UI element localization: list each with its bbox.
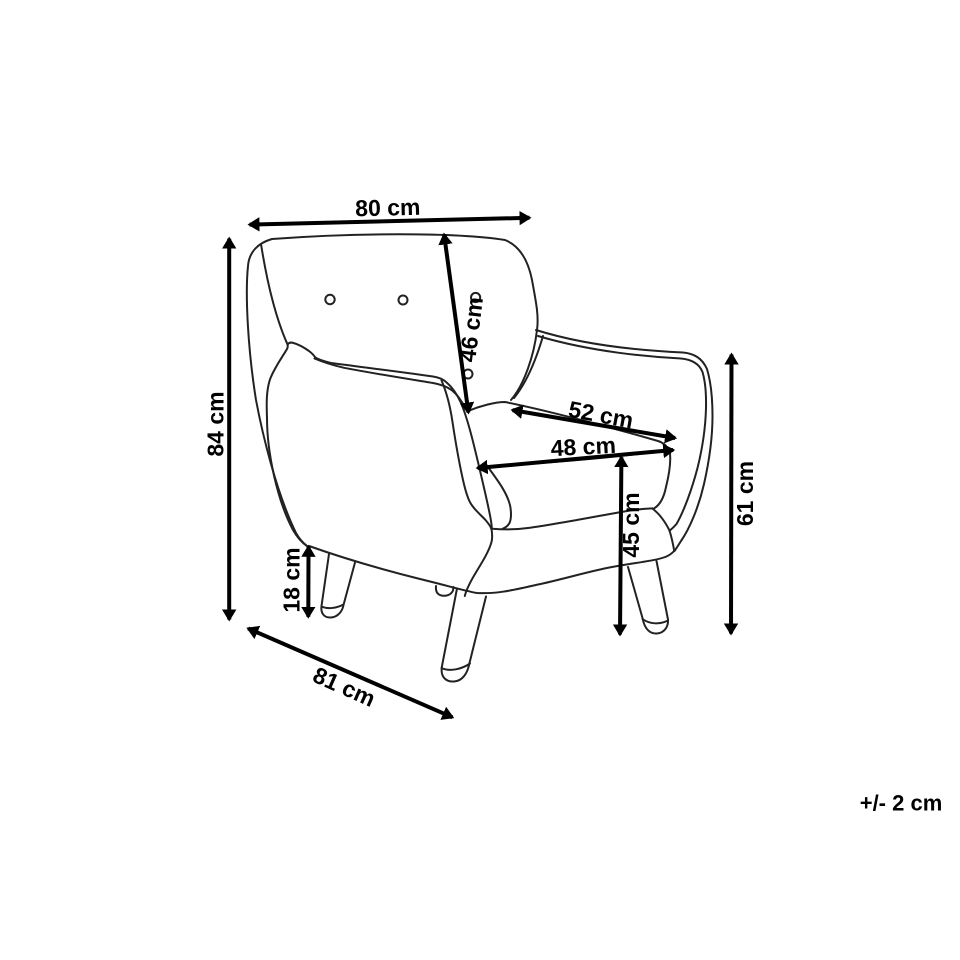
svg-text:52 cm: 52 cm xyxy=(567,396,636,433)
svg-text:80 cm: 80 cm xyxy=(355,194,421,222)
svg-text:18 cm: 18 cm xyxy=(279,547,305,612)
svg-text:48 cm: 48 cm xyxy=(550,432,616,461)
svg-text:84 cm: 84 cm xyxy=(203,391,229,456)
svg-text:45 cm: 45 cm xyxy=(618,492,644,557)
svg-text:46 cm: 46 cm xyxy=(454,296,488,364)
svg-text:61 cm: 61 cm xyxy=(732,461,758,526)
svg-text:+/- 2 cm: +/- 2 cm xyxy=(860,791,943,816)
